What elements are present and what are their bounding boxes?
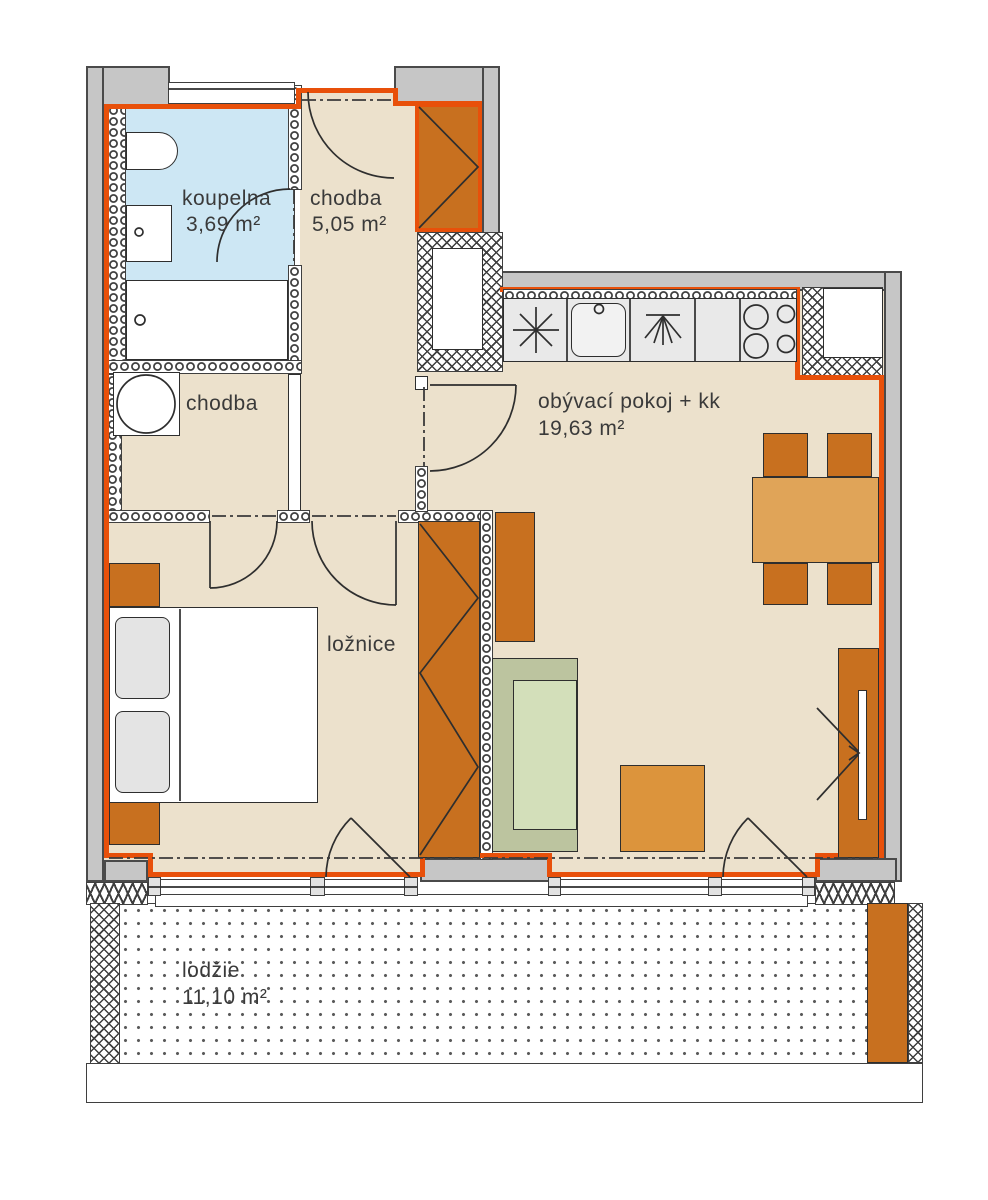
shaft-hallway-duct — [432, 248, 483, 350]
dining-chair — [827, 433, 872, 477]
dining-table — [752, 477, 879, 563]
room-label-obyvaci-pokoj: obývací pokoj + kk — [538, 390, 720, 414]
loggia-cabinet — [867, 903, 908, 1063]
window-mullion — [148, 877, 161, 896]
loggia-railing — [86, 1063, 923, 1103]
window-mullion — [708, 877, 722, 896]
room-label-koupelna: koupelna — [182, 187, 271, 211]
kitchen-sink — [571, 303, 626, 357]
room-area-lodzie: 11,10 m² — [182, 986, 267, 1010]
dining-chair — [827, 563, 872, 605]
hatch-wall-bedroom-top-a — [107, 510, 210, 523]
outline-bottom-bedroom — [148, 872, 425, 877]
washing-machine — [113, 372, 180, 436]
coffee-table — [620, 765, 705, 852]
wardrobe-hallway — [415, 103, 482, 232]
hatch-wall-bath-hall-lower — [288, 265, 302, 364]
kitchen-counter — [503, 298, 797, 362]
room-area-koupelna: 3,69 m² — [186, 213, 261, 237]
toilet — [126, 132, 178, 170]
wall-stub-bottom-middle — [420, 858, 550, 882]
outline-bottom-living — [547, 872, 820, 877]
window-bathroom-top — [168, 82, 295, 104]
insulation-band-bottom-right — [815, 882, 895, 905]
window-mullion — [404, 877, 418, 896]
pillow — [115, 617, 170, 699]
insulation-band-bottom-left — [86, 882, 148, 905]
outline-right — [879, 375, 884, 858]
window-mullion — [802, 877, 815, 896]
wall-stub-bottom-right — [815, 858, 897, 882]
floor-plan: koupelna 3,69 m² chodba 5,05 m² chodba o… — [0, 0, 988, 1200]
room-label-lodzie: lodžie — [182, 959, 240, 983]
room-label-chodba-lower: chodba — [186, 392, 258, 416]
room-label-chodba-top: chodba — [310, 187, 382, 211]
washbasin — [126, 205, 172, 262]
outline-entry-top — [296, 88, 398, 93]
tv-screen — [858, 690, 867, 820]
outline-bathroom-top — [104, 104, 301, 109]
wall-left-band — [86, 66, 104, 882]
outline-stub-left-top — [104, 853, 153, 858]
wall-between-hallways — [288, 374, 301, 512]
cabinet-living — [495, 512, 535, 642]
wall-right-band — [884, 271, 902, 882]
room-area-chodba-top: 5,05 m² — [312, 213, 387, 237]
hatch-wall-bedroom-top-b — [277, 510, 310, 523]
hatch-wall-hall-living-stub — [415, 466, 428, 512]
loggia-wall-right — [908, 903, 923, 1063]
room-area-obyvaci-pokoj: 19,63 m² — [538, 417, 625, 441]
room-loggia-floor — [118, 903, 868, 1065]
loggia-wall-left — [90, 903, 120, 1065]
window-mullion — [310, 877, 325, 896]
dining-chair — [763, 563, 808, 605]
wall-stub-bottom-left — [104, 860, 148, 882]
window-mullion — [548, 877, 561, 896]
room-label-loznice: ložnice — [327, 633, 396, 657]
hatch-wall-bathroom-left — [107, 104, 126, 364]
room-hallway-top-floor — [300, 88, 417, 512]
wall-stub-hall-living-top — [415, 376, 428, 390]
pillow — [115, 711, 170, 793]
nightstand-top — [109, 563, 160, 607]
outline-shaft-bottom — [795, 375, 884, 380]
nightstand-bottom — [109, 800, 160, 845]
dining-chair — [763, 433, 808, 477]
bathtub — [126, 280, 288, 360]
shaft-kitchen-duct — [823, 288, 883, 358]
wardrobe-bedroom — [418, 521, 480, 858]
sofa-seat — [513, 680, 577, 830]
